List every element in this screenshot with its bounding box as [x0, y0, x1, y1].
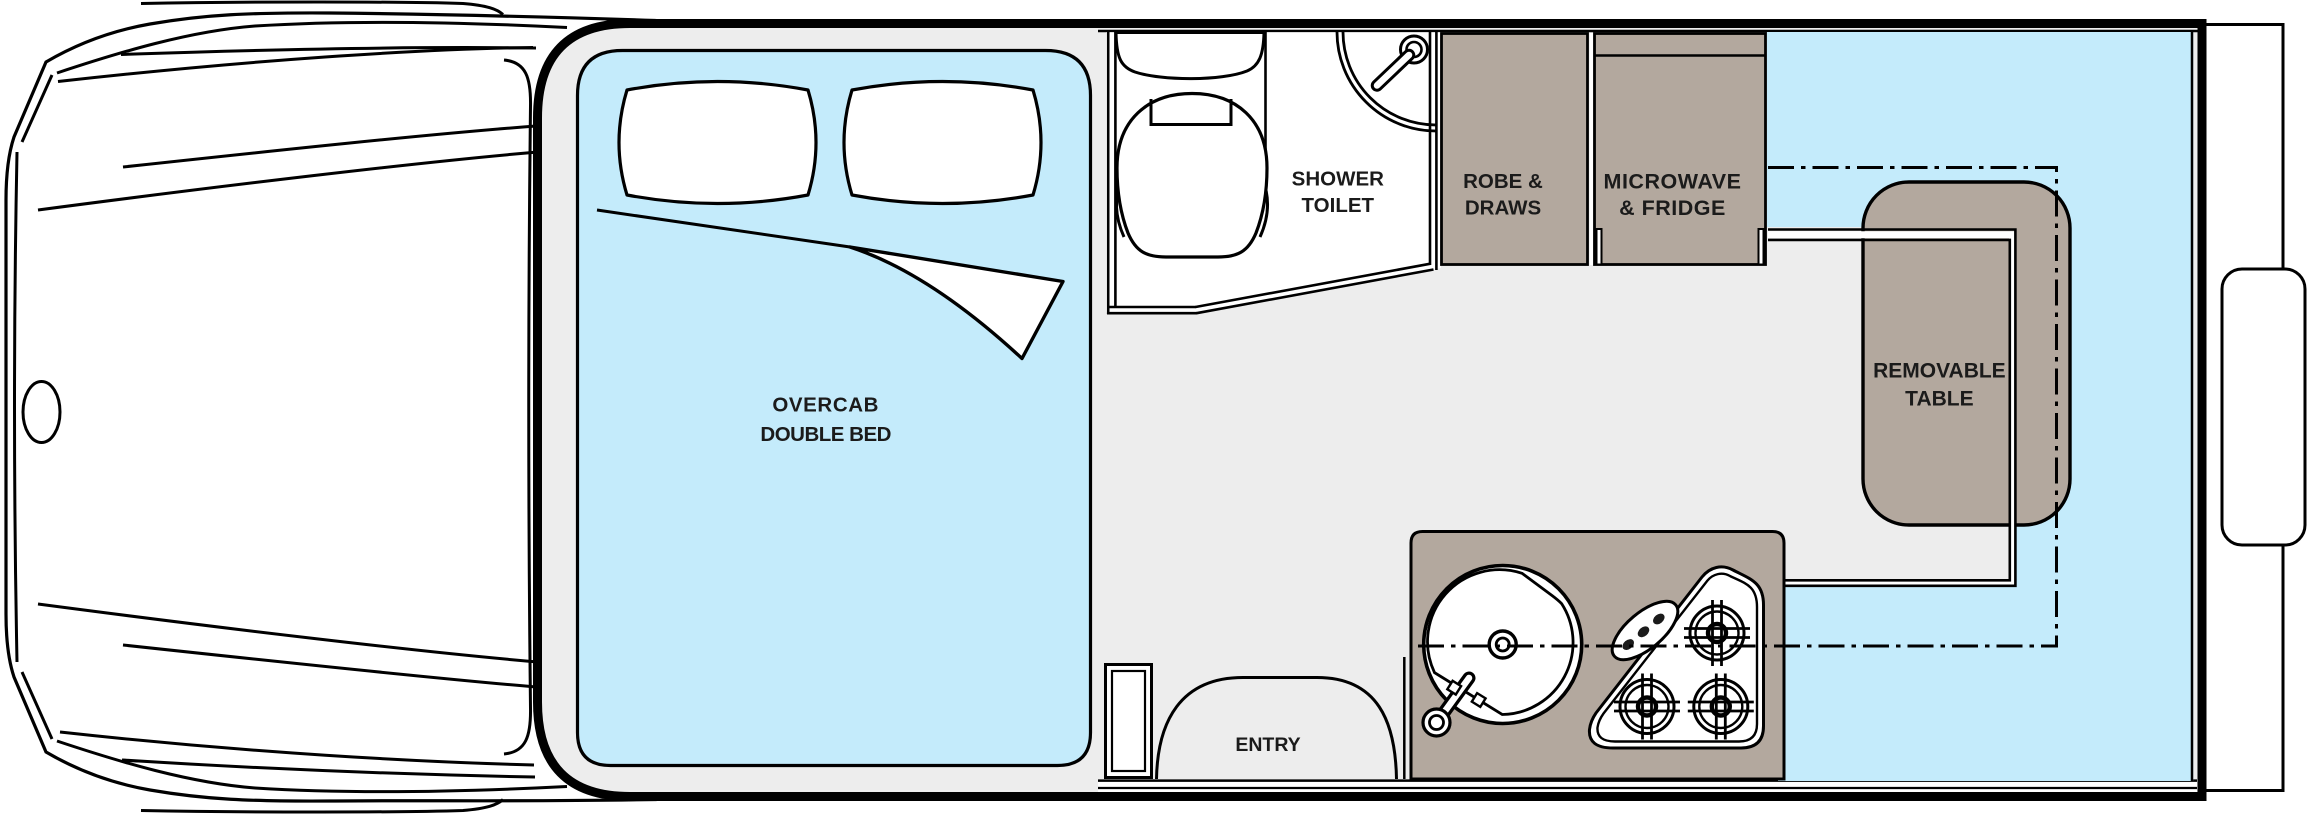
svg-text:ENTRY: ENTRY — [1235, 734, 1300, 756]
svg-text:DOUBLE BED: DOUBLE BED — [760, 423, 891, 446]
svg-text:OVERCAB: OVERCAB — [772, 394, 879, 417]
svg-text:SHOWER: SHOWER — [1292, 168, 1384, 191]
svg-text:ROBE &: ROBE & — [1463, 170, 1543, 193]
svg-text:TABLE: TABLE — [1905, 387, 1973, 410]
svg-text:& FRIDGE: & FRIDGE — [1619, 196, 1726, 220]
svg-text:REMOVABLE: REMOVABLE — [1873, 359, 2006, 382]
svg-text:MICROWAVE: MICROWAVE — [1604, 169, 1742, 193]
svg-text:DRAWS: DRAWS — [1465, 197, 1541, 220]
svg-text:TOILET: TOILET — [1302, 194, 1375, 217]
